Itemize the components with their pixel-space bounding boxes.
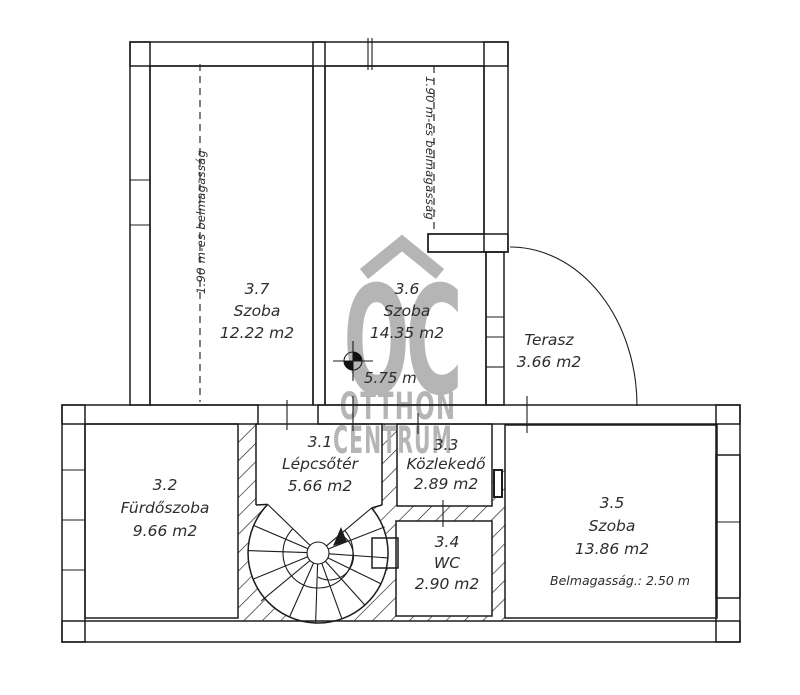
floorplan-page: OC OTTHON CENTRUM xyxy=(0,0,800,695)
door-leaf-room-35 xyxy=(494,470,502,497)
room-33-name: Közlekedő xyxy=(407,455,486,473)
room-37-name: Szoba xyxy=(234,302,281,320)
watermark-logo: OC OTTHON CENTRUM xyxy=(333,243,459,463)
floorplan-canvas: OC OTTHON CENTRUM xyxy=(0,0,800,695)
room-35-name: Szoba xyxy=(589,517,636,535)
room-34-number: 3.4 xyxy=(435,533,460,551)
room-36-name: Szoba xyxy=(384,302,431,320)
room-31-number: 3.1 xyxy=(308,433,333,451)
room-32-number: 3.2 xyxy=(153,476,178,494)
room-36-area: 14.35 m2 xyxy=(370,324,444,342)
room-36-number: 3.6 xyxy=(395,280,420,298)
room-34-name: WC xyxy=(434,554,460,572)
room-32-name: Fürdőszoba xyxy=(121,499,210,517)
room-32-area: 9.66 m2 xyxy=(133,522,197,540)
room-35-area: 13.86 m2 xyxy=(575,540,649,558)
room-33-number: 3.3 xyxy=(434,436,459,454)
room-34-area: 2.90 m2 xyxy=(415,575,479,593)
room-37-area: 12.22 m2 xyxy=(220,324,294,342)
room-37-height-note: 1.90 m-es belmagasság xyxy=(194,150,208,294)
room-31-area: 5.66 m2 xyxy=(288,477,352,495)
room-33-area: 2.89 m2 xyxy=(414,475,478,493)
room-35-number: 3.5 xyxy=(600,494,625,512)
terasz-name: Terasz xyxy=(524,331,574,349)
level-mark-value: 5.75 m xyxy=(364,369,417,387)
room-37-number: 3.7 xyxy=(245,280,270,298)
room-35-ceiling-note: Belmagasság.: 2.50 m xyxy=(550,573,690,588)
terasz-area: 3.66 m2 xyxy=(517,353,581,371)
room-31-name: Lépcsőtér xyxy=(282,455,360,473)
room-36-height-note: 1.90 m-es belmagasság xyxy=(423,76,437,220)
